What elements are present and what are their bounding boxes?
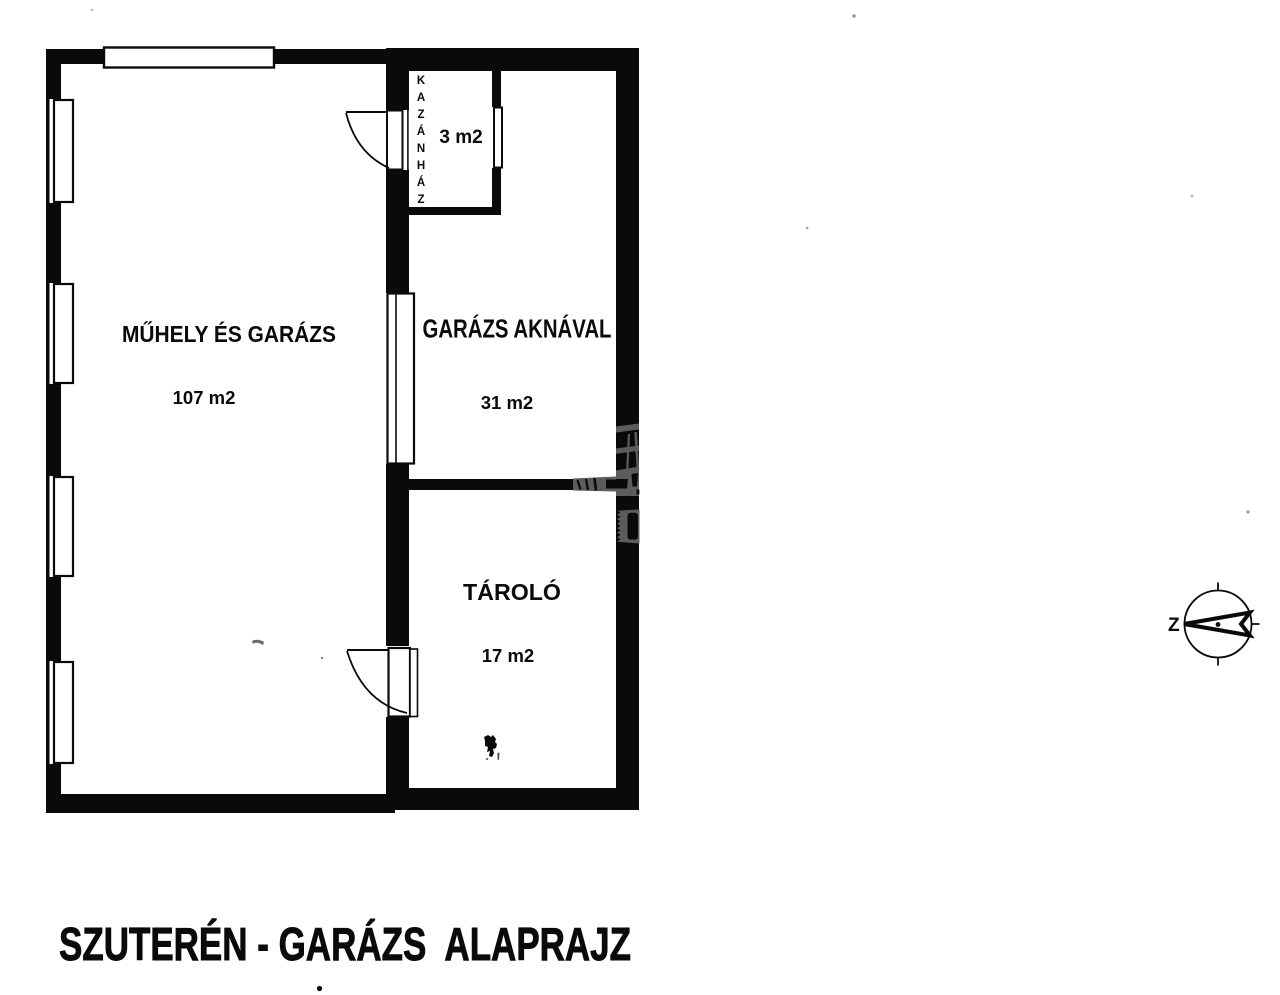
- svg-text:107 m2: 107 m2: [173, 387, 236, 408]
- svg-text:Z: Z: [417, 109, 424, 121]
- svg-text:3 m2: 3 m2: [439, 127, 482, 148]
- svg-text:MŰHELY ÉS GARÁZS: MŰHELY ÉS GARÁZS: [122, 320, 336, 347]
- svg-text:SZUTERÉN - GARÁZS ALAPRAJZ: SZUTERÉN - GARÁZS ALAPRAJZ: [59, 918, 631, 970]
- svg-text:N: N: [417, 143, 425, 155]
- svg-text:31 m2: 31 m2: [481, 392, 533, 413]
- svg-text:H: H: [417, 160, 425, 172]
- svg-text:Á: Á: [417, 176, 425, 189]
- svg-text:Z: Z: [1168, 615, 1180, 636]
- svg-text:A: A: [417, 92, 425, 104]
- svg-text:Á: Á: [417, 125, 425, 138]
- svg-text:GARÁZS AKNÁVAL: GARÁZS AKNÁVAL: [423, 314, 612, 344]
- svg-text:17 m2: 17 m2: [482, 645, 534, 666]
- svg-text:K: K: [417, 75, 426, 87]
- svg-text:Z: Z: [417, 194, 424, 206]
- svg-text:TÁROLÓ: TÁROLÓ: [463, 578, 561, 605]
